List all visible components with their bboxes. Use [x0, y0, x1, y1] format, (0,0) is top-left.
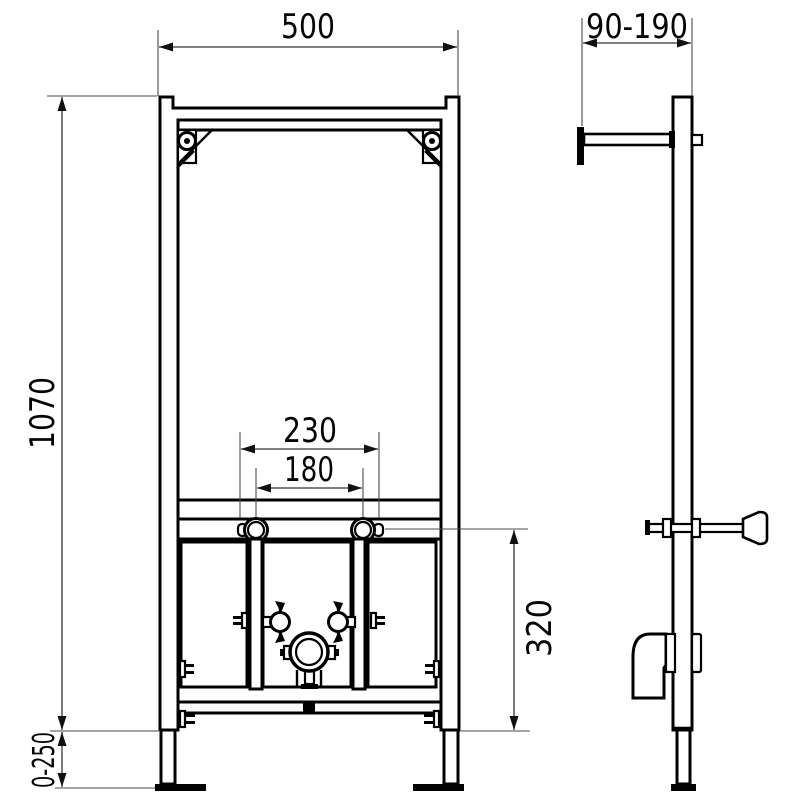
stud-rail: [178, 500, 441, 519]
dimension-label: 320: [520, 599, 560, 657]
wall-bracket-arm: [584, 134, 673, 145]
corner-gusset-left: [177, 129, 213, 168]
dimension-label: 0-250: [27, 732, 62, 788]
arrowhead: [443, 43, 457, 52]
leg-left: [161, 730, 175, 784]
arrowhead: [364, 445, 378, 454]
arrowhead: [58, 716, 67, 730]
arrowhead: [510, 530, 519, 544]
dimension-label: 500: [281, 7, 335, 47]
side-view: [577, 97, 767, 791]
installation-frame-drawing: 500 90-190 1070 0-250: [0, 0, 800, 800]
arm-connector: [669, 131, 675, 148]
wall-plate: [577, 127, 584, 165]
dimension-label: 230: [283, 411, 337, 451]
arrowhead: [510, 716, 519, 730]
leg-right: [444, 730, 458, 784]
inner-upright-right: [353, 539, 365, 689]
foot-left: [155, 784, 206, 791]
fixing-pin-side: [645, 512, 767, 544]
dim-leg-adjustment: 0-250: [27, 731, 160, 788]
foot-right: [413, 784, 464, 791]
dim-frame-height: 1070: [23, 96, 157, 730]
inner-upright-left: [250, 539, 262, 689]
bottom-rail-center-nut: [303, 703, 315, 714]
corner-gusset-right: [406, 129, 442, 168]
arrowhead: [58, 97, 67, 111]
dimension-label: 180: [284, 450, 334, 490]
technical-drawing-page: 500 90-190 1070 0-250: [0, 0, 800, 800]
cone-cap-icon: [743, 512, 767, 544]
post-top-tab: [692, 135, 702, 145]
dimension-label: 1070: [23, 377, 63, 449]
side-foot: [671, 784, 696, 791]
dimension-label: 90-190: [586, 7, 688, 47]
arrowhead: [257, 484, 271, 493]
arrowhead: [241, 445, 255, 454]
arrowhead: [348, 484, 362, 493]
arrowhead: [159, 43, 173, 52]
side-leg: [677, 730, 690, 784]
dim-frame-width: 500: [158, 7, 458, 96]
